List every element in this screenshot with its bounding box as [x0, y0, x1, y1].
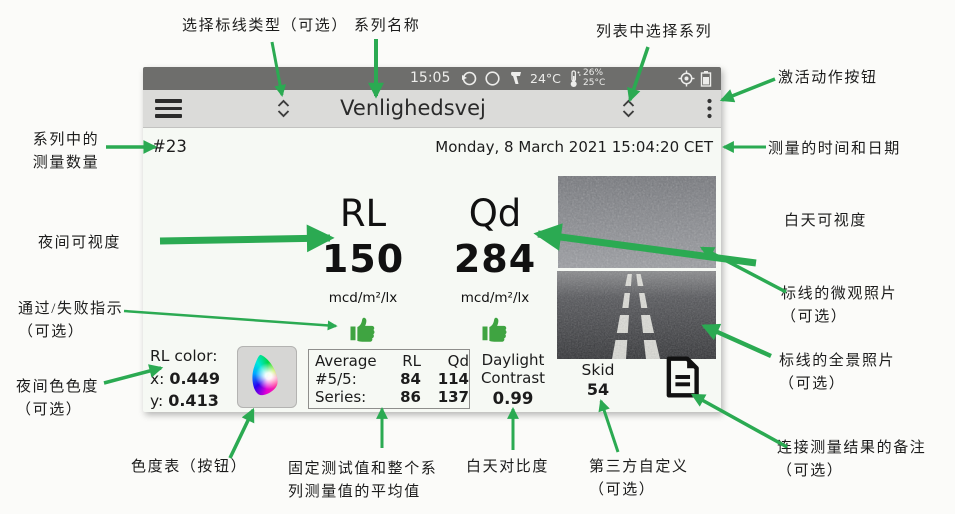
measurement-count: #23	[152, 137, 187, 156]
avg-header-rl: RL	[381, 352, 421, 370]
annotation-action-button: 激活动作按钮	[778, 67, 878, 90]
annotated-figure: 15:05 24°C 26%25°C	[0, 0, 955, 514]
cie-horseshoe-icon	[247, 353, 287, 399]
sync-icon	[461, 70, 478, 87]
annotation-night-visibility: 夜间可视度	[38, 232, 121, 255]
qd-unit: mcd/m²/lx	[425, 290, 565, 306]
mode-circle-icon	[484, 70, 501, 87]
avg-row2-qd: 137	[421, 388, 469, 406]
annotation-pass-fail: 通过/失败指示 （可选）	[18, 298, 123, 343]
menu-bar: Venlighedsvej	[143, 90, 721, 128]
avg-row2-rl: 86	[381, 388, 421, 406]
daylight-label-1: Daylight	[478, 351, 548, 369]
rl-unit: mcd/m²/lx	[293, 290, 433, 306]
skid-label: Skid	[573, 361, 623, 380]
annotation-measurement-datetime: 测量的时间和日期	[768, 138, 901, 161]
macro-photo	[558, 176, 716, 268]
skid-block: Skid 54	[573, 361, 623, 399]
annotation-pano-photo: 标线的全景照片 （可选）	[779, 350, 895, 395]
rl-color-x: x: 0.449	[150, 368, 220, 391]
annotation-micro-photo: 标线的微观照片 （可选）	[781, 283, 897, 328]
daylight-label-2: Contrast	[478, 369, 548, 387]
qd-reading: Qd 284 mcd/m²/lx	[425, 195, 565, 348]
rl-color-title: RL color:	[150, 346, 220, 368]
average-table: Average RL Qd #5/5: 84 114 Series: 86 13…	[308, 349, 470, 409]
measurement-datetime: Monday, 8 March 2021 15:04:20 CET	[435, 138, 713, 156]
annotation-day-visibility: 白天可视度	[784, 210, 867, 233]
thermometer-icon	[567, 70, 581, 88]
annotation-night-color: 夜间色色度 （可选）	[16, 376, 99, 421]
rl-reading: RL 150 mcd/m²/lx	[293, 195, 433, 348]
battery-icon	[700, 70, 712, 87]
rl-value: 150	[293, 240, 433, 278]
avg-row1-rl: 84	[381, 370, 421, 388]
gps-icon	[678, 70, 695, 87]
annotation-measurement-notes: 连接测量结果的备注 （可选）	[777, 437, 926, 482]
daylight-contrast-value: 0.99	[478, 389, 548, 409]
arrow-action-button	[722, 79, 775, 100]
series-title: Venlighedsvej	[283, 96, 543, 120]
qd-pass-thumb-icon	[480, 314, 510, 344]
arrow-chroma-button	[230, 410, 253, 458]
ambient-temperature: 24°C	[530, 71, 561, 86]
panorama-photo	[557, 271, 716, 359]
action-overflow-icon[interactable]	[706, 98, 713, 120]
measurement-screen: #23 Monday, 8 March 2021 15:04:20 CET RL…	[143, 127, 721, 412]
daylight-contrast-block: Daylight Contrast 0.99	[478, 351, 548, 409]
annotation-select-marking-type: 选择标线类型（可选）	[182, 15, 348, 38]
skid-value: 54	[573, 380, 623, 399]
annotation-chroma-button: 色度表（按钮）	[131, 456, 247, 479]
qd-label: Qd	[425, 195, 565, 232]
annotation-daylight-contrast: 白天对比度	[466, 456, 549, 479]
rl-color-y: y: 0.413	[150, 390, 220, 413]
humidity-road-temp: 26%25°C	[583, 68, 605, 89]
chromaticity-chart-button[interactable]	[237, 346, 297, 408]
qd-value: 284	[425, 240, 565, 278]
annotation-third-party: 第三方自定义 （可选）	[589, 456, 689, 501]
avg-row1-qd: 114	[421, 370, 469, 388]
clock-time: 15:05	[410, 70, 450, 86]
rl-pass-thumb-icon	[348, 314, 378, 344]
hamburger-menu-icon[interactable]	[155, 99, 182, 122]
notes-document-button[interactable]	[663, 354, 701, 400]
annotation-fixed-series-average: 固定测试值和整个系 列测量值的平均值	[288, 458, 437, 503]
avg-header: Average	[315, 352, 381, 370]
series-select-icon[interactable]	[621, 99, 636, 118]
annotation-select-series: 列表中选择系列	[596, 21, 712, 44]
annotation-series-count: 系列中的 测量数量	[28, 129, 104, 174]
avg-row2-label: Series:	[315, 388, 381, 406]
rl-label: RL	[293, 195, 433, 232]
rl-color-block: RL color: x: 0.449 y: 0.413	[150, 346, 220, 413]
ir-thermometer-icon	[509, 70, 525, 86]
status-bar: 15:05 24°C 26%25°C	[143, 67, 721, 90]
avg-header-qd: Qd	[421, 352, 469, 370]
annotation-series-name: 系列名称	[354, 15, 420, 38]
device-screenshot: 15:05 24°C 26%25°C	[143, 67, 721, 412]
avg-row1-label: #5/5:	[315, 370, 381, 388]
